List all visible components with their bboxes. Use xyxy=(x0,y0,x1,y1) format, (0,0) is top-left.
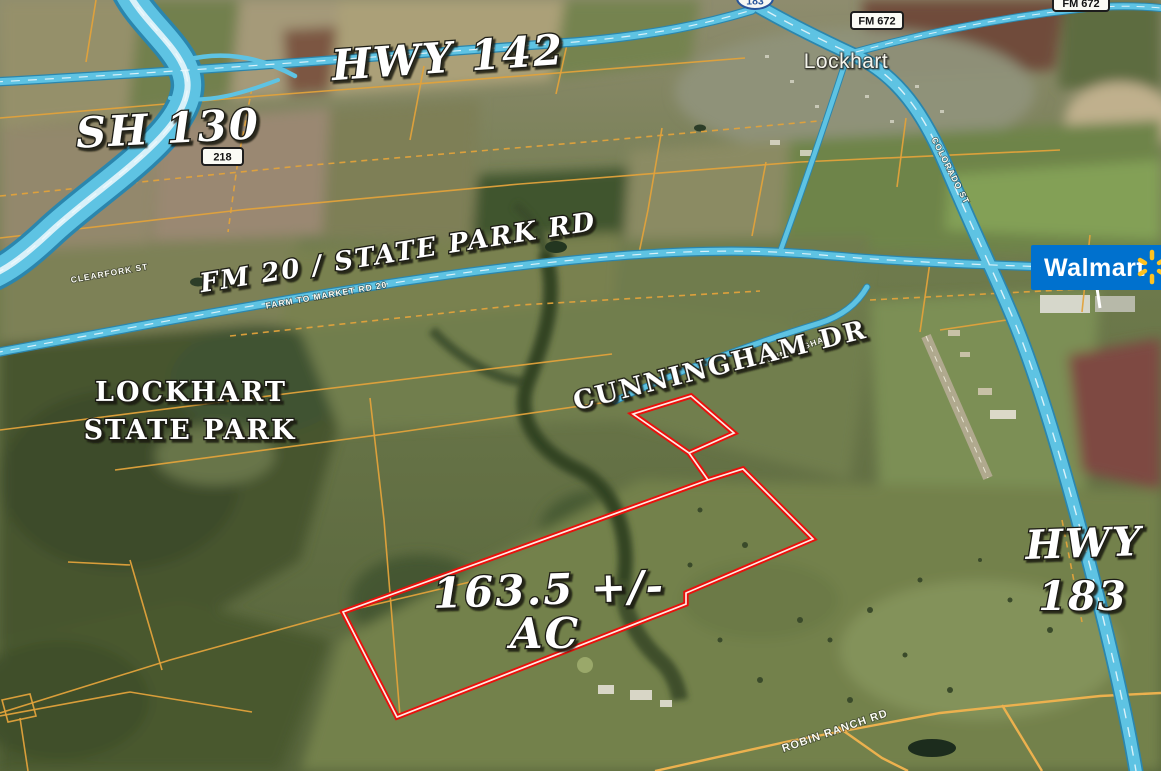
aerial-map-canvas: CLEARFORK ST FARM TO MARKET RD 20 CUNNIN… xyxy=(0,0,1161,771)
map-svg: CLEARFORK ST FARM TO MARKET RD 20 CUNNIN… xyxy=(0,0,1161,771)
